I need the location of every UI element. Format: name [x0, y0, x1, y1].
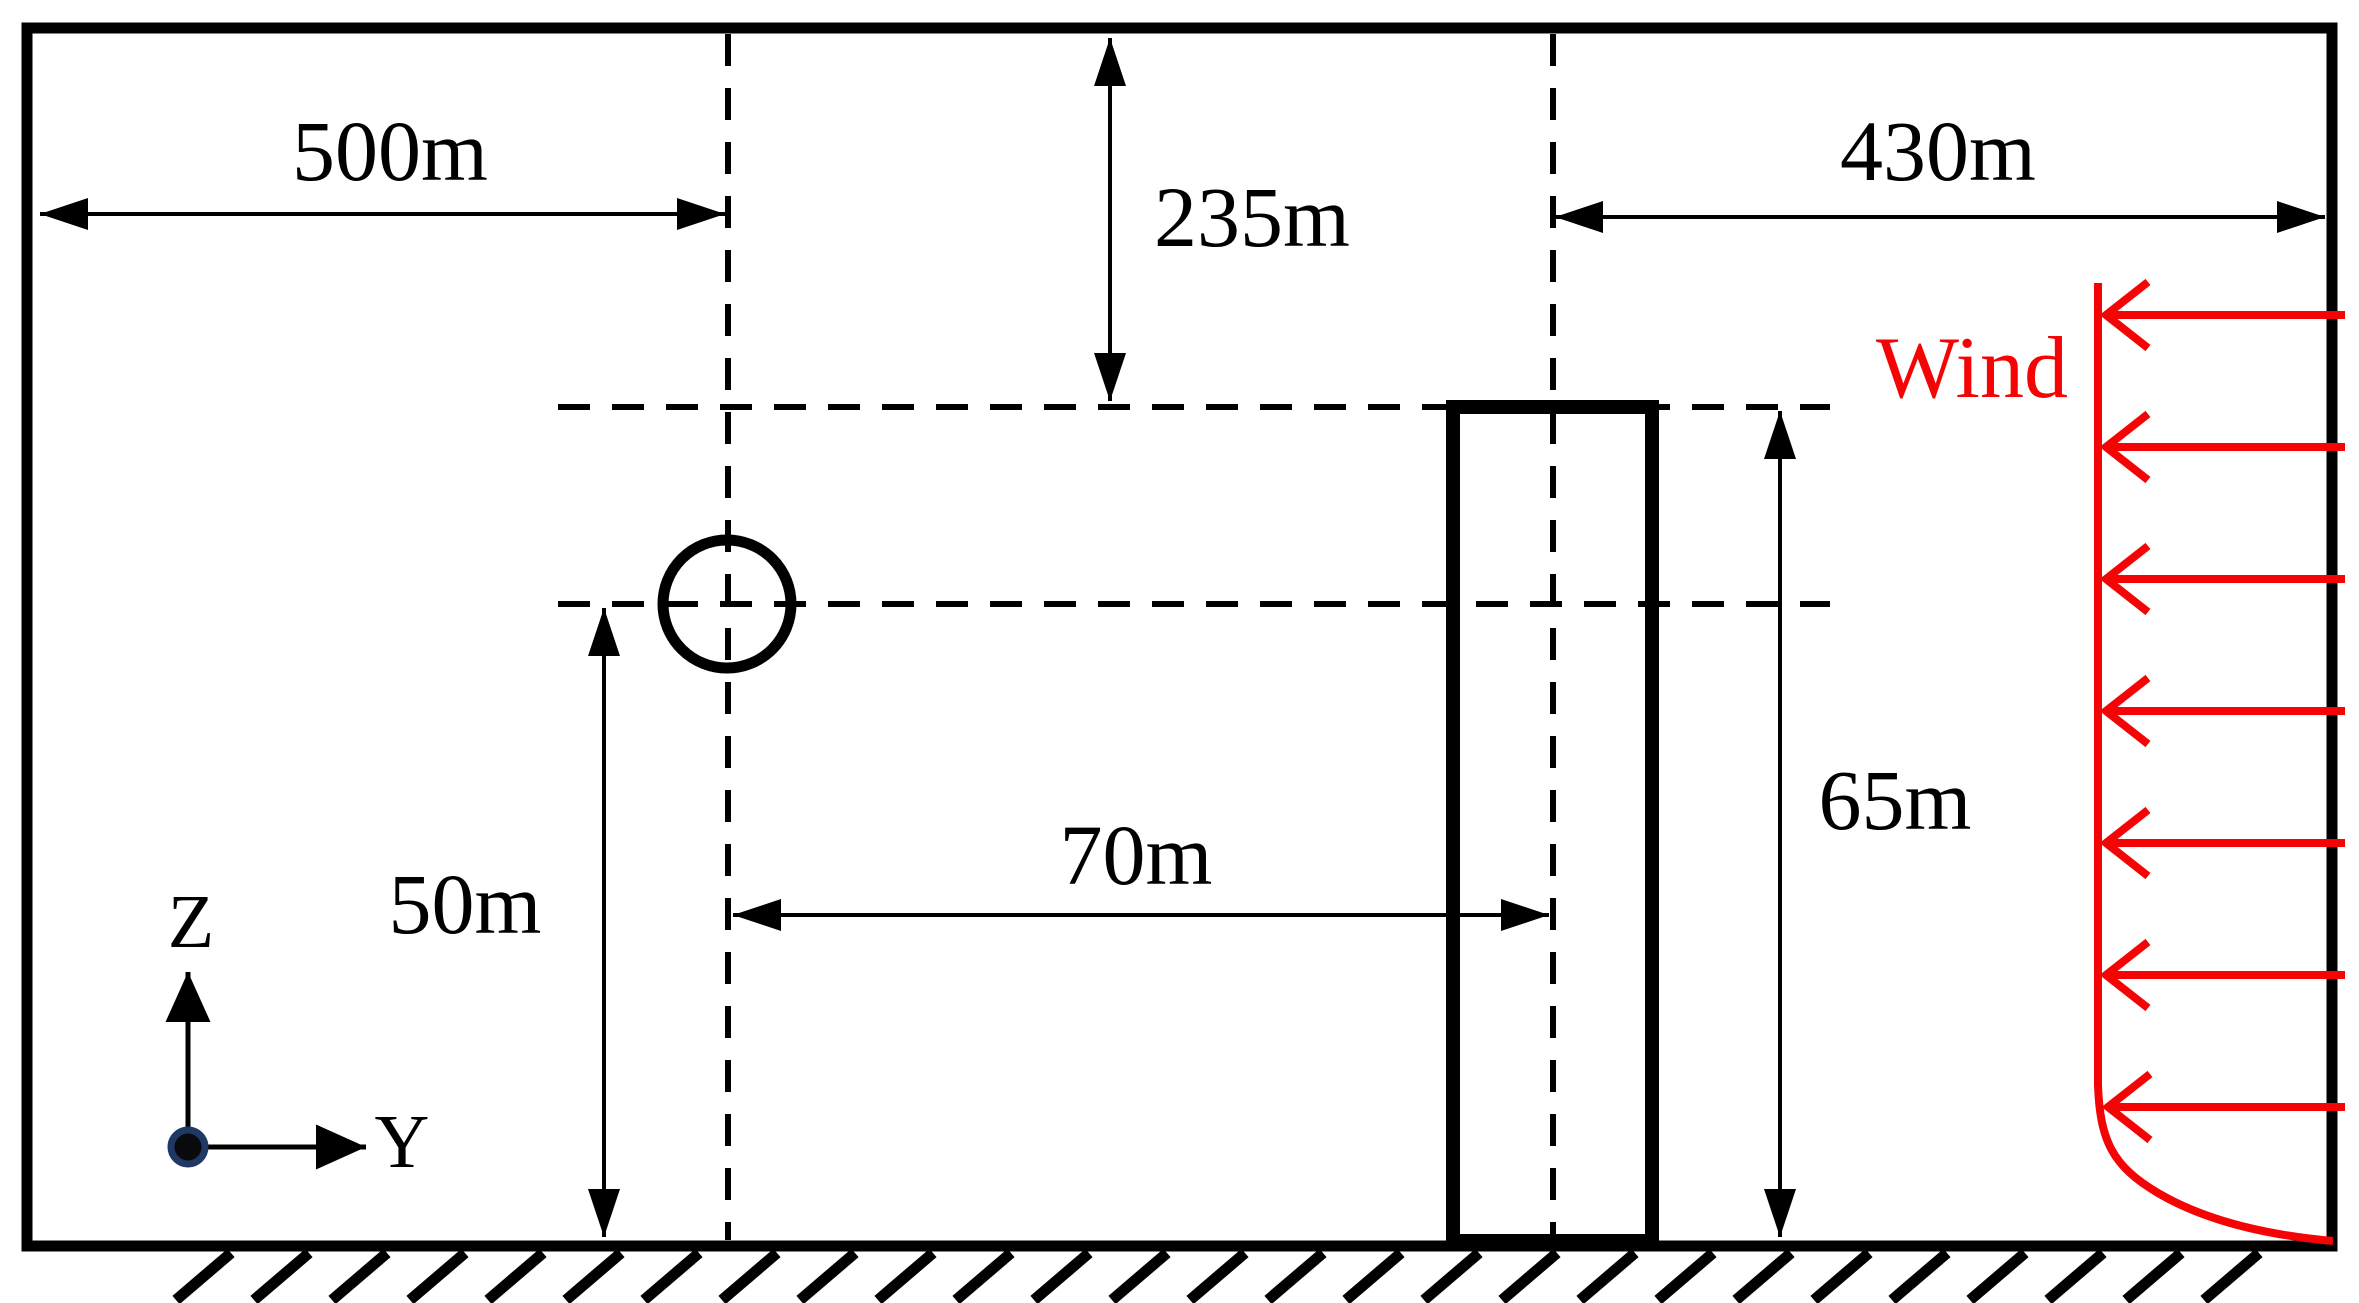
- label-50m: 50m: [389, 856, 542, 952]
- z-axis-label: Z: [168, 880, 214, 964]
- wind-arrow: [2106, 942, 2345, 1008]
- label-65m: 65m: [1819, 752, 1972, 848]
- wind-arrow: [2106, 414, 2345, 480]
- origin-dot: [171, 1130, 205, 1164]
- wind-arrow: [2108, 1074, 2345, 1140]
- label-430m: 430m: [1840, 103, 2036, 199]
- wind-arrow: [2106, 810, 2345, 876]
- domain-schematic-svg: 500m 430m 235m 70m 50m 65m: [0, 0, 2359, 1303]
- y-axis-label: Y: [375, 1100, 430, 1184]
- label-70m: 70m: [1060, 807, 1213, 903]
- wind-label: Wind: [1876, 320, 2068, 417]
- schematic-canvas: 500m 430m 235m 70m 50m 65m: [0, 0, 2359, 1303]
- ground-hatching: [176, 1253, 2259, 1300]
- label-500m: 500m: [292, 103, 488, 199]
- wind-arrow: [2106, 546, 2345, 612]
- label-235m: 235m: [1154, 169, 1350, 265]
- wind-arrow: [2106, 282, 2345, 348]
- wind-arrow: [2106, 678, 2345, 744]
